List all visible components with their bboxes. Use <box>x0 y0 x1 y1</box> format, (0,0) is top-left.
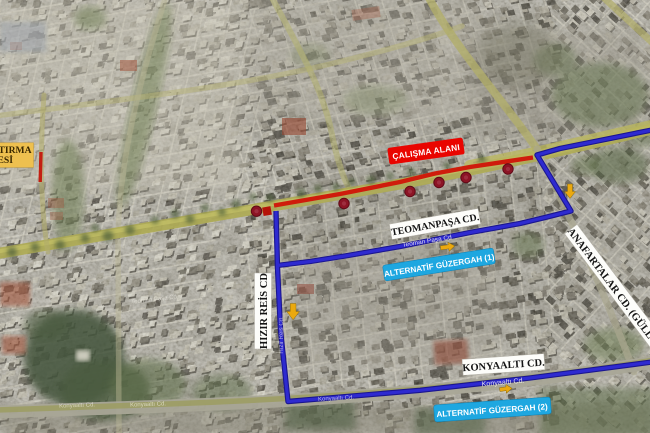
svg-text:Konyaaltı Cd.: Konyaaltı Cd. <box>130 401 167 408</box>
svg-text:Konyaaltı Cd.: Konyaaltı Cd. <box>59 402 96 409</box>
svg-text:HASTANESİ: HASTANESİ <box>0 154 13 166</box>
svg-text:HIZIR REİS CD: HIZIR REİS CD <box>258 273 270 349</box>
svg-text:Hızır Reis Cd.: Hızır Reis Cd. <box>279 316 285 354</box>
